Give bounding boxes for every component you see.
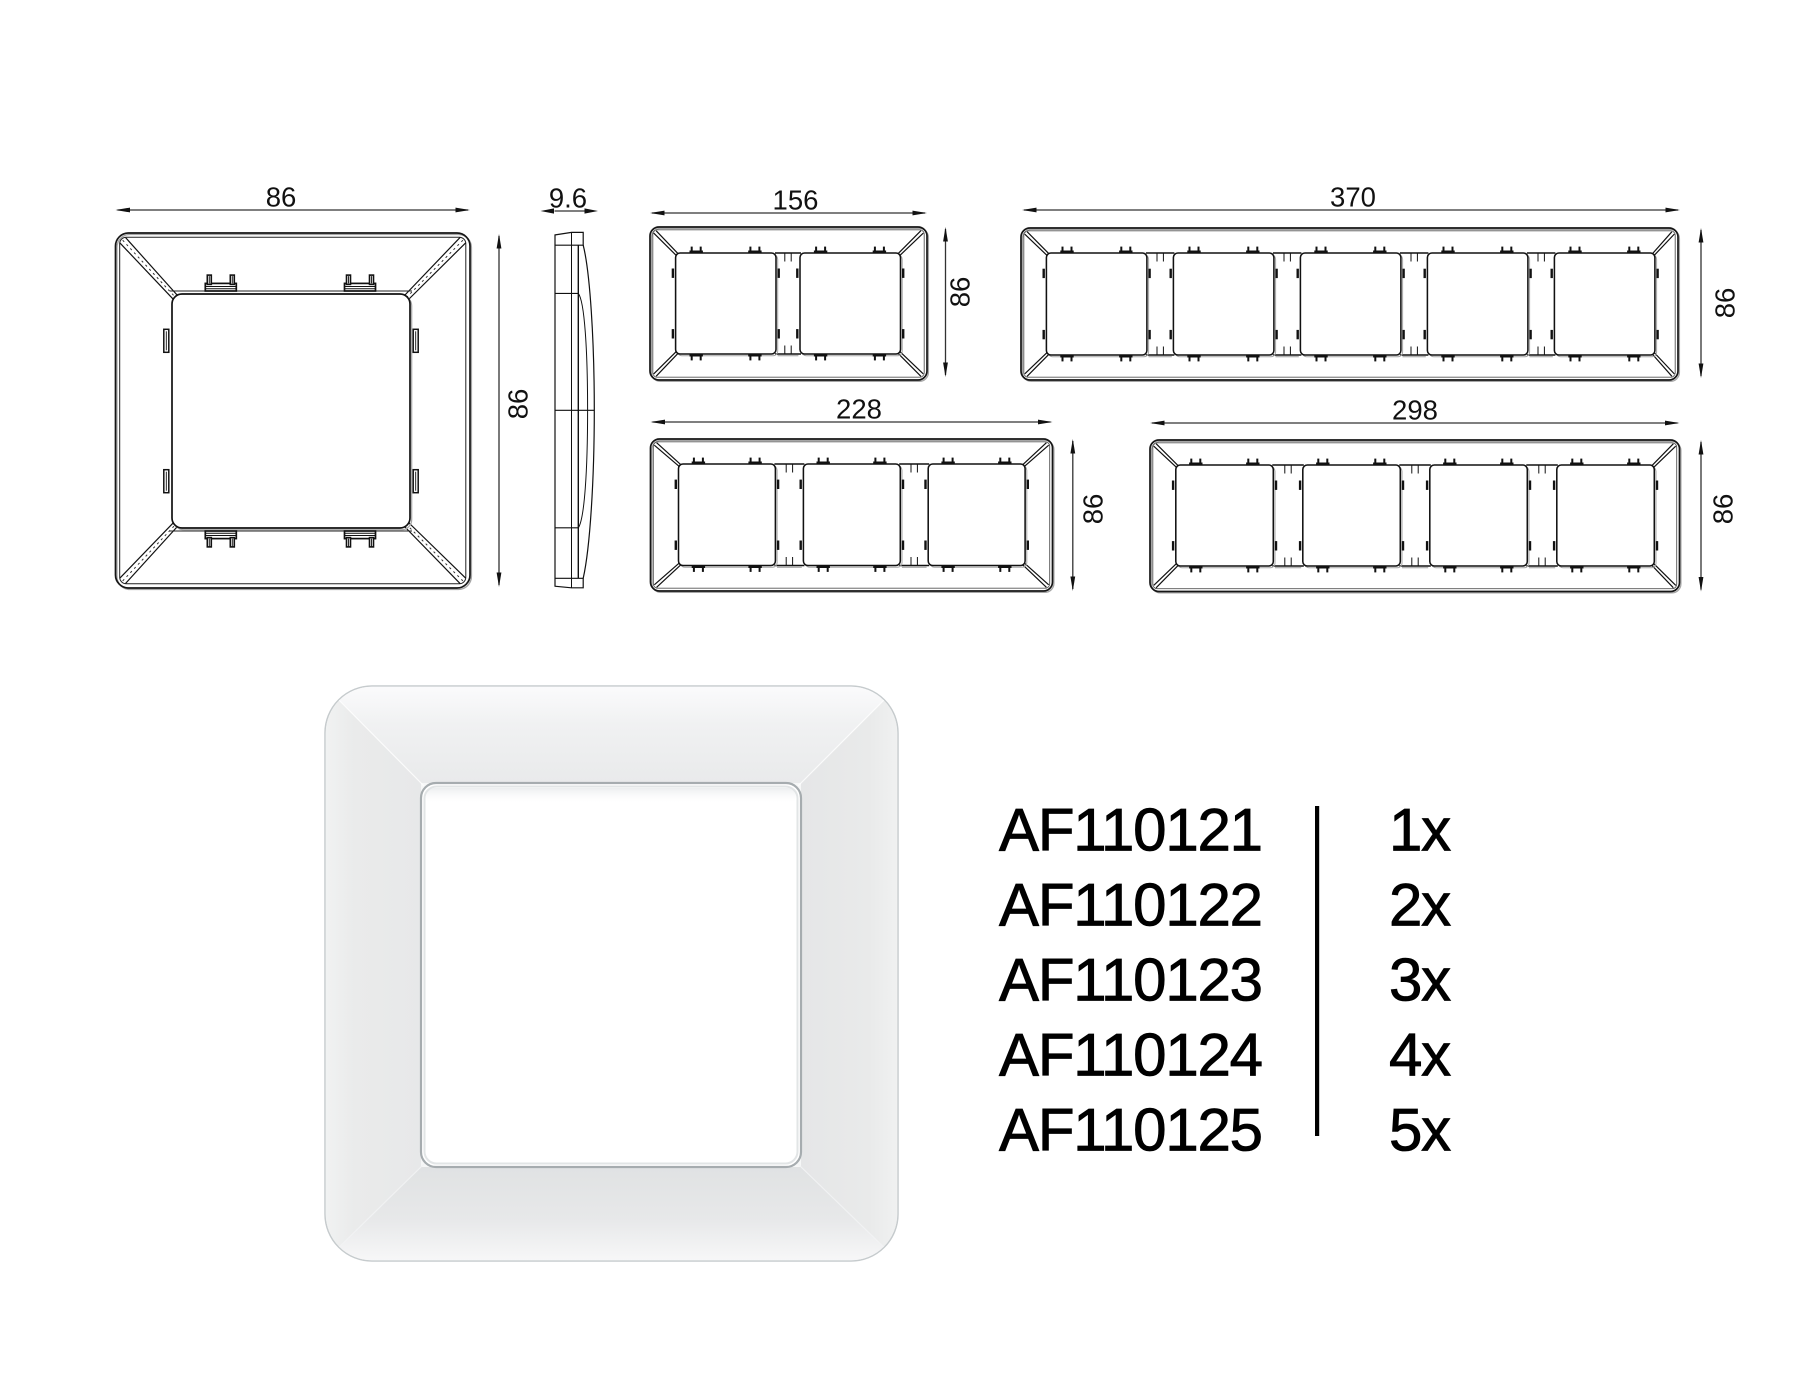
svg-text:86: 86 — [944, 277, 975, 308]
svg-text:5x: 5x — [1389, 1097, 1451, 1164]
svg-text:228: 228 — [836, 393, 882, 424]
svg-text:AF110122: AF110122 — [999, 872, 1262, 939]
svg-text:AF110121: AF110121 — [999, 797, 1262, 864]
svg-text:86: 86 — [1077, 494, 1108, 525]
svg-text:86: 86 — [1707, 494, 1738, 525]
svg-text:2x: 2x — [1389, 872, 1451, 939]
svg-text:AF110123: AF110123 — [999, 947, 1262, 1014]
svg-text:9.6: 9.6 — [549, 182, 587, 213]
svg-text:86: 86 — [266, 181, 297, 212]
svg-text:86: 86 — [1709, 288, 1740, 319]
svg-text:1x: 1x — [1389, 797, 1451, 864]
svg-text:AF110124: AF110124 — [999, 1022, 1262, 1089]
svg-text:3x: 3x — [1389, 947, 1451, 1014]
svg-text:156: 156 — [773, 184, 819, 215]
svg-text:4x: 4x — [1389, 1022, 1451, 1089]
svg-text:86: 86 — [502, 389, 533, 420]
svg-text:370: 370 — [1330, 181, 1376, 212]
svg-text:298: 298 — [1392, 394, 1438, 425]
svg-text:AF110125: AF110125 — [999, 1097, 1262, 1164]
